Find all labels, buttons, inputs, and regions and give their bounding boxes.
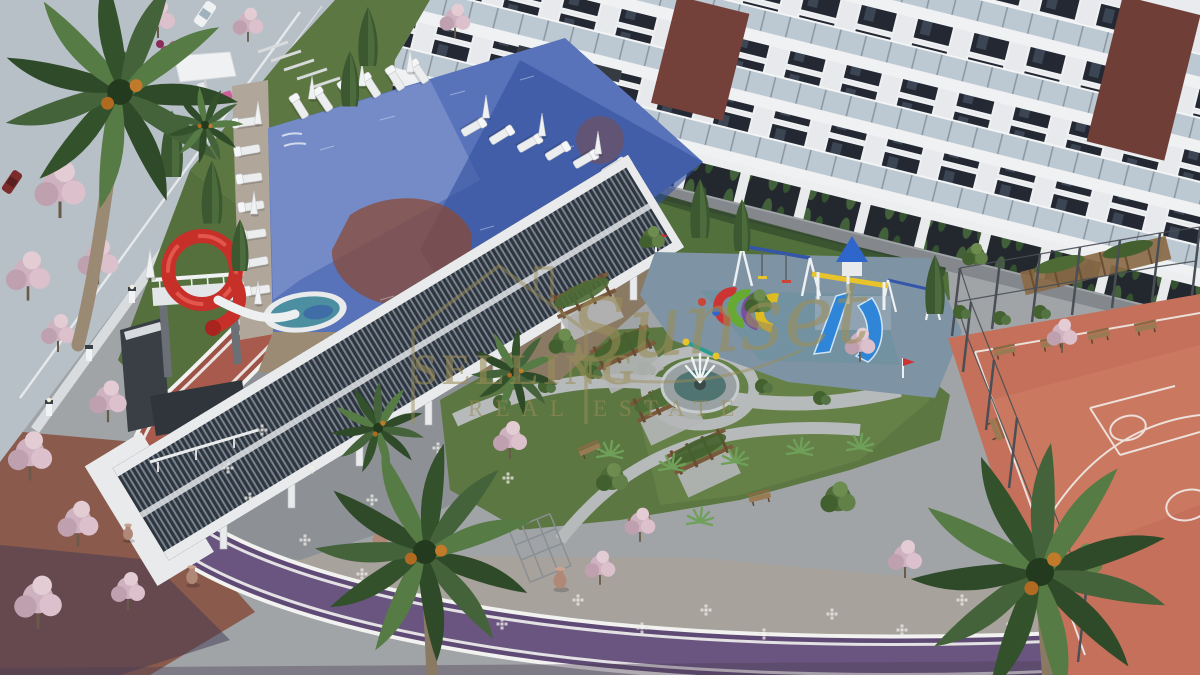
aerial-render: SELLING Sunset REAL ESTATE	[0, 0, 1200, 675]
watermark-word-script: Sunset	[566, 262, 872, 383]
scene-canvas: SELLING Sunset REAL ESTATE	[0, 0, 1200, 675]
watermark-word-sub: REAL ESTATE	[468, 396, 746, 421]
